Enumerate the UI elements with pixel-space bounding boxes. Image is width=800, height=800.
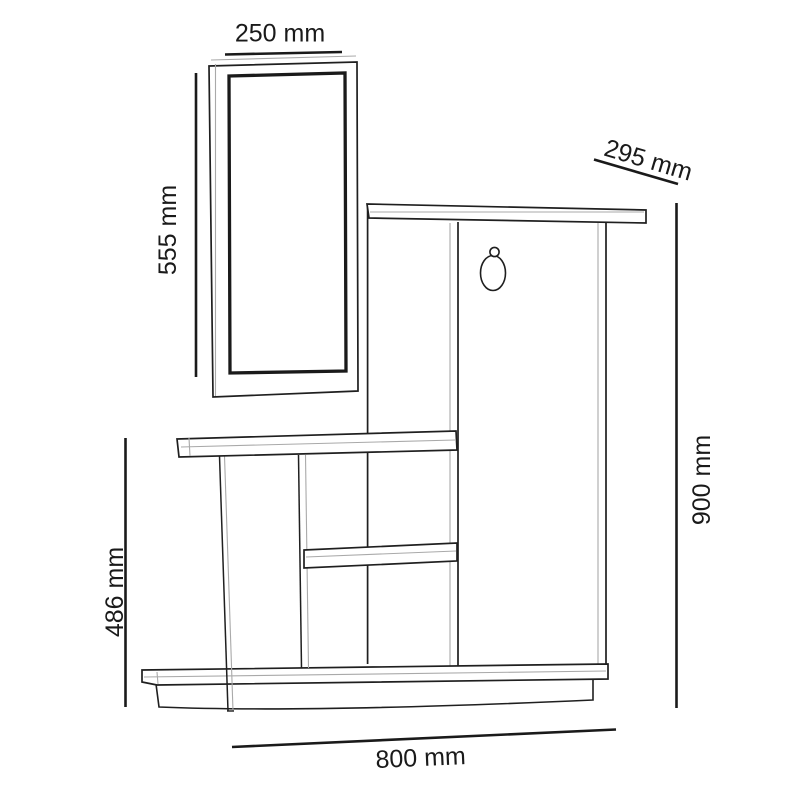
dimension-drawing-canvas: 250 mm 555 mm 295 mm 900 mm 486 mm 800 m [0,0,800,800]
base-platform [142,664,608,709]
furniture-diagram: 250 mm 555 mm 295 mm 900 mm 486 mm 800 m [0,0,800,800]
dim-label-800: 800 mm [375,742,466,774]
door-knob-body [481,256,506,291]
dimension-mirror-width: 250 mm [225,20,342,55]
dimension-total-width: 800 mm [232,730,616,774]
dim-line-250 [225,52,342,55]
dim-label-295: 295 mm [601,134,696,186]
dim-label-900: 900 mm [688,435,716,525]
dim-label-486: 486 mm [101,547,129,637]
dimension-mirror-height: 555 mm [154,73,196,377]
door-knob [481,247,506,290]
dimension-shelf-height: 486 mm [101,438,129,707]
middle-shelf [304,543,457,568]
dimension-total-height: 900 mm [677,203,717,708]
dim-label-555: 555 mm [154,185,182,275]
dimension-annotations: 250 mm 555 mm 295 mm 900 mm 486 mm 800 m [101,20,716,774]
dimension-depth: 295 mm [594,134,696,186]
wall-mirror [209,56,358,397]
cabinet-top-slab [367,204,646,223]
dim-label-250: 250 mm [235,20,325,48]
divider-front-edge [299,455,302,668]
mirror-frame-bevel-top [211,56,356,60]
door-knob-top [490,247,499,256]
mirror-glass [229,73,346,373]
